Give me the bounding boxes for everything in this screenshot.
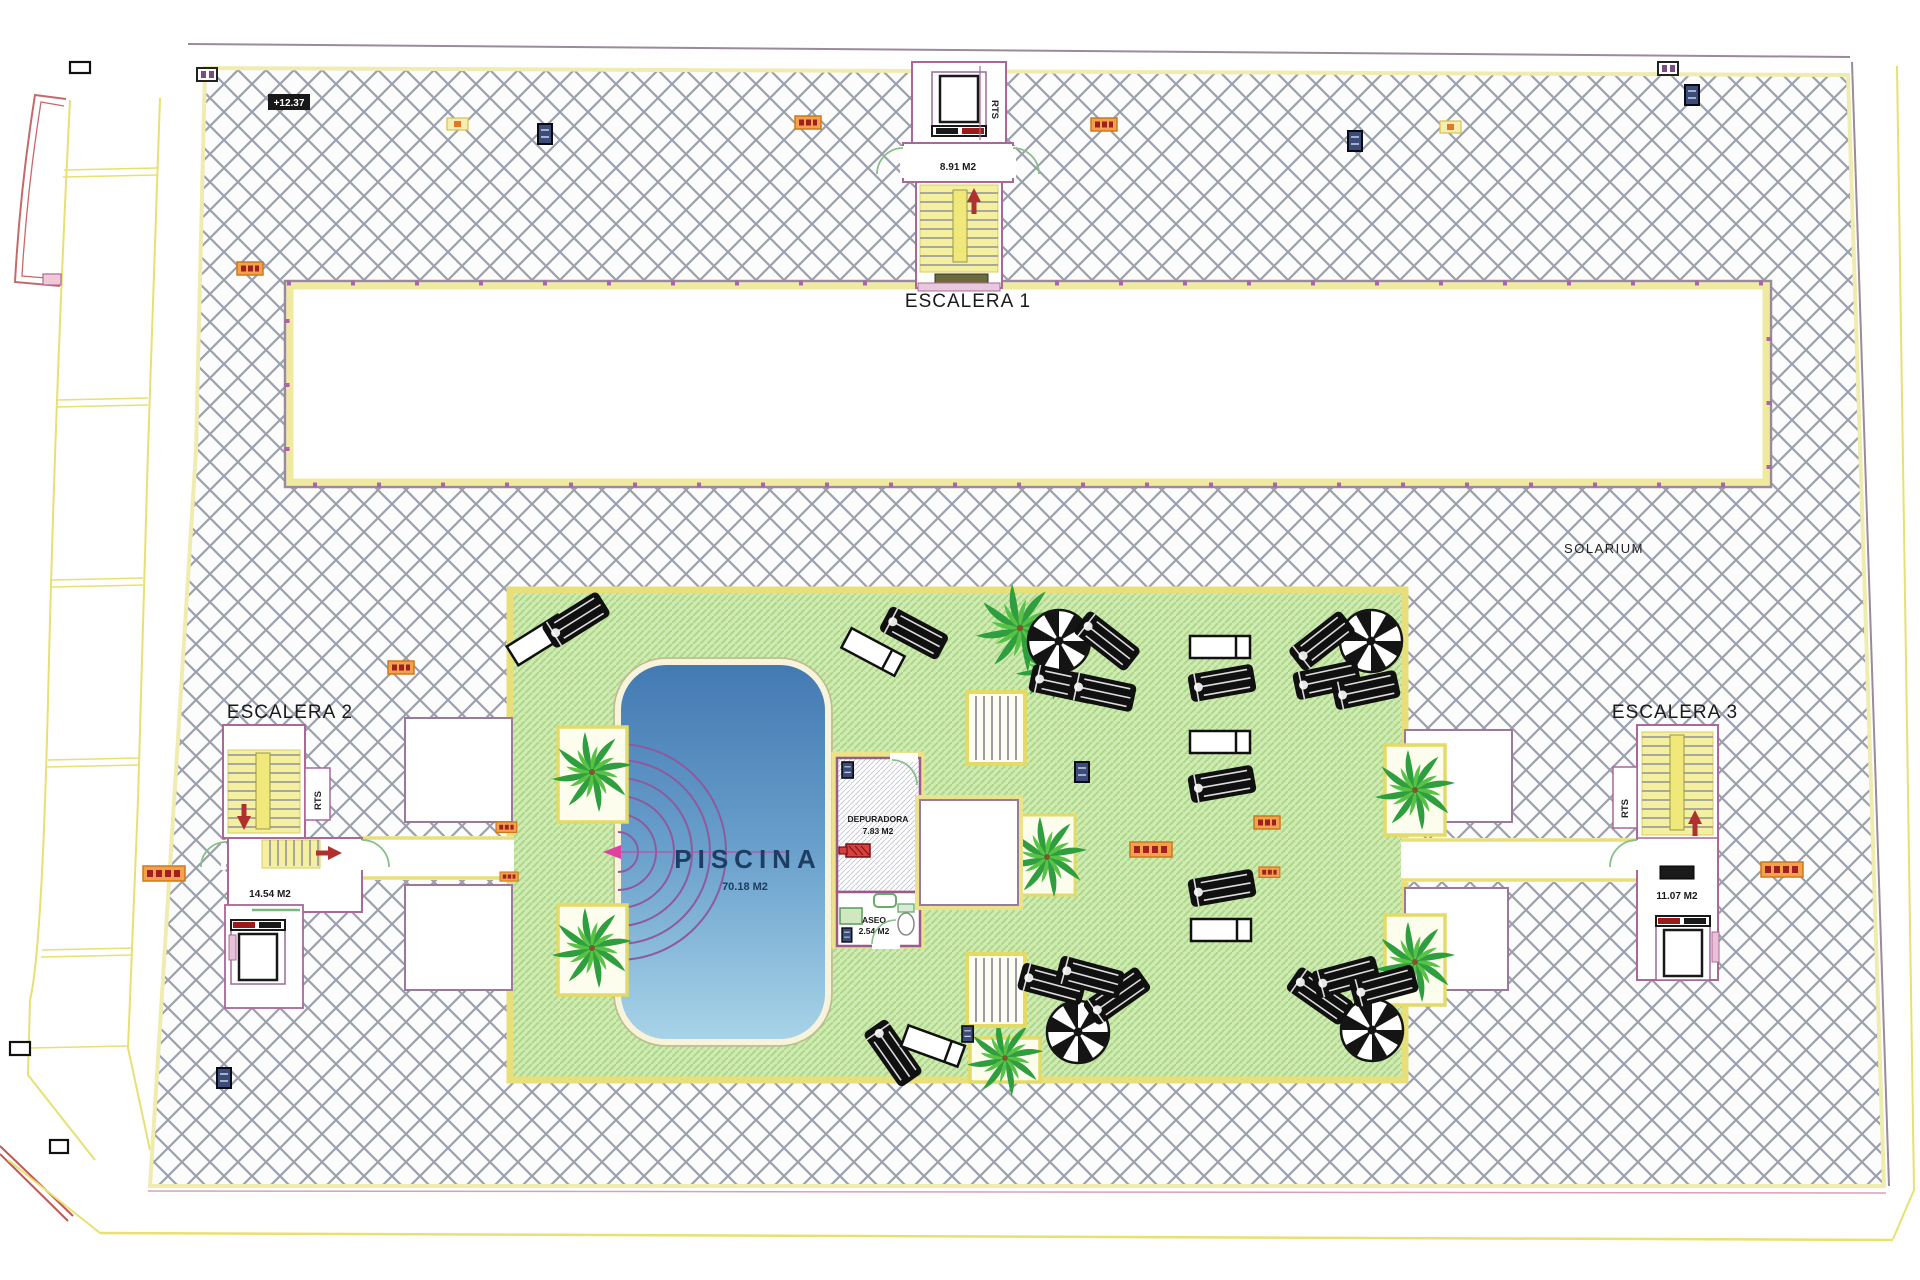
rts-shaft-label: RTS bbox=[1620, 799, 1631, 818]
roof-box bbox=[405, 885, 512, 990]
swimming-pool: PISCINA 70.18 M2 bbox=[603, 658, 832, 1046]
patio-box bbox=[917, 797, 1021, 908]
annotation-orange bbox=[1259, 867, 1280, 877]
aseo-room: ASEO 2.54 M2 bbox=[837, 892, 920, 949]
elevator bbox=[932, 72, 986, 136]
annotation-blue bbox=[1348, 131, 1362, 151]
drain-marker bbox=[842, 762, 853, 778]
escalera2-area-label: 14.54 M2 bbox=[249, 889, 291, 900]
annotation-blue bbox=[1075, 762, 1089, 782]
deck-steps-north bbox=[967, 692, 1025, 764]
column-marker bbox=[10, 1042, 30, 1055]
depuradora-label: DEPURADORA bbox=[848, 814, 909, 824]
left-terraces bbox=[10, 62, 160, 1160]
rts-shaft-label: RTS bbox=[989, 100, 1000, 119]
pool-area-label: 70.18 M2 bbox=[722, 881, 768, 893]
level-marker: +12.37 bbox=[268, 94, 310, 110]
annotation-orange bbox=[1091, 118, 1117, 131]
walkway-east bbox=[1401, 838, 1637, 882]
annotation-orange bbox=[237, 262, 263, 275]
escalera1-area-label: 8.91 M2 bbox=[940, 162, 977, 173]
escalera1-label: ESCALERA 1 bbox=[905, 291, 1031, 312]
elevator bbox=[1656, 916, 1710, 980]
toilet-symbol bbox=[898, 913, 914, 935]
depuradora-area-label: 7.83 M2 bbox=[863, 826, 894, 836]
rts-shaft-label: RTS bbox=[313, 791, 324, 810]
annotation-blue bbox=[962, 1026, 973, 1042]
annotation-orange bbox=[1254, 816, 1280, 829]
sink-symbol bbox=[874, 894, 896, 907]
shower-symbol bbox=[840, 908, 862, 924]
floor-plan-page: SOLARIUM bbox=[0, 0, 1920, 1280]
dark-label-box bbox=[1660, 866, 1694, 879]
solarium-label: SOLARIUM bbox=[1564, 541, 1644, 556]
annotation-orange bbox=[1130, 842, 1172, 857]
elevator bbox=[231, 920, 285, 984]
drain-marker bbox=[842, 928, 852, 942]
annotation-orange bbox=[143, 866, 185, 881]
annotation-blue bbox=[538, 124, 552, 144]
roof-box bbox=[405, 718, 512, 822]
column-marker bbox=[70, 62, 90, 73]
svg-text:+12.37: +12.37 bbox=[274, 98, 305, 109]
stair-flight bbox=[920, 185, 998, 272]
annotation-blue bbox=[1685, 85, 1699, 105]
annotation-orange bbox=[795, 116, 821, 129]
annotation-orange bbox=[500, 872, 518, 881]
escalera3-label: ESCALERA 3 bbox=[1612, 702, 1738, 723]
annotation-orange bbox=[496, 822, 517, 832]
pool-label: PISCINA bbox=[674, 844, 821, 874]
deck-steps-south bbox=[967, 954, 1025, 1026]
annotation-yellow bbox=[1440, 121, 1461, 133]
annotation-orange bbox=[1761, 862, 1803, 877]
stair-flight bbox=[1642, 732, 1713, 835]
column-marker bbox=[50, 1140, 68, 1153]
walkway-west bbox=[362, 836, 514, 880]
escalera3-area-label: 11.07 M2 bbox=[1656, 891, 1698, 902]
annotation-blue bbox=[217, 1068, 231, 1088]
annotation-yellow bbox=[447, 118, 468, 130]
floor-plan-canvas: SOLARIUM bbox=[0, 0, 1920, 1280]
escalera2-label: ESCALERA 2 bbox=[227, 702, 353, 723]
annotation-orange bbox=[388, 661, 414, 674]
